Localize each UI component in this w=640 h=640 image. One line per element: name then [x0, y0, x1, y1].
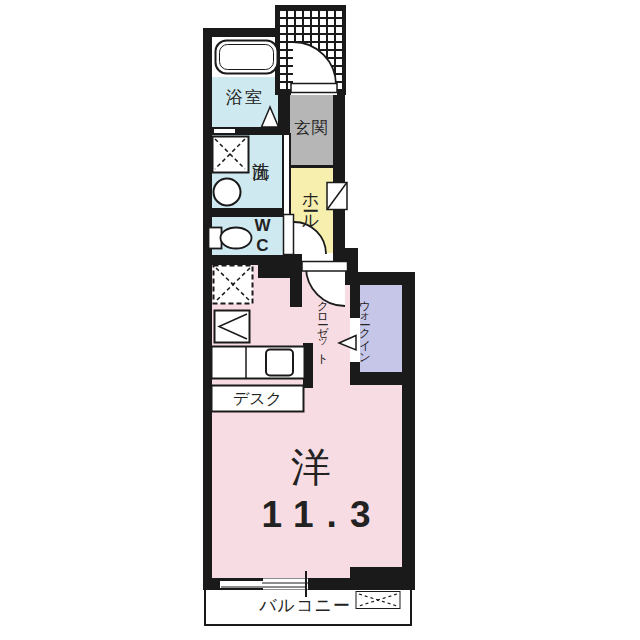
walk-in-closet-label-line2: クローゼット — [316, 282, 330, 370]
main-room-size: 11.3 — [236, 494, 396, 536]
washroom-label: 洗面 — [249, 149, 272, 155]
balcony-label: バルコニー — [250, 594, 360, 617]
main-room-label: 洋 — [291, 440, 331, 495]
walk-in-closet-label-line1: ウォークイン — [358, 282, 372, 370]
desk-label: デスク — [212, 389, 303, 410]
bathroom-label: 浴室 — [212, 86, 278, 109]
hall-label: ホール — [299, 181, 322, 223]
washbasin — [214, 179, 241, 206]
wc-door-leaf — [284, 215, 294, 255]
wc-label: WC — [252, 216, 272, 256]
entrance-label: 玄関 — [290, 118, 333, 139]
floor-plan: 浴室 玄関 洗面 WC ホール ウォークイン クローゼット デスク 洋 11.3… — [0, 0, 640, 640]
bathroom-door-slot — [214, 129, 236, 134]
toilet-bowl — [221, 228, 252, 249]
room-door-leaf — [302, 262, 348, 272]
bathroom-door-triangle — [262, 107, 279, 127]
toilet-tank — [209, 228, 222, 249]
walk-in-closet-label: ウォークイン クローゼット — [363, 282, 400, 370]
entrance-door-leaf — [291, 84, 337, 93]
balcony-window-slot2 — [263, 579, 308, 590]
